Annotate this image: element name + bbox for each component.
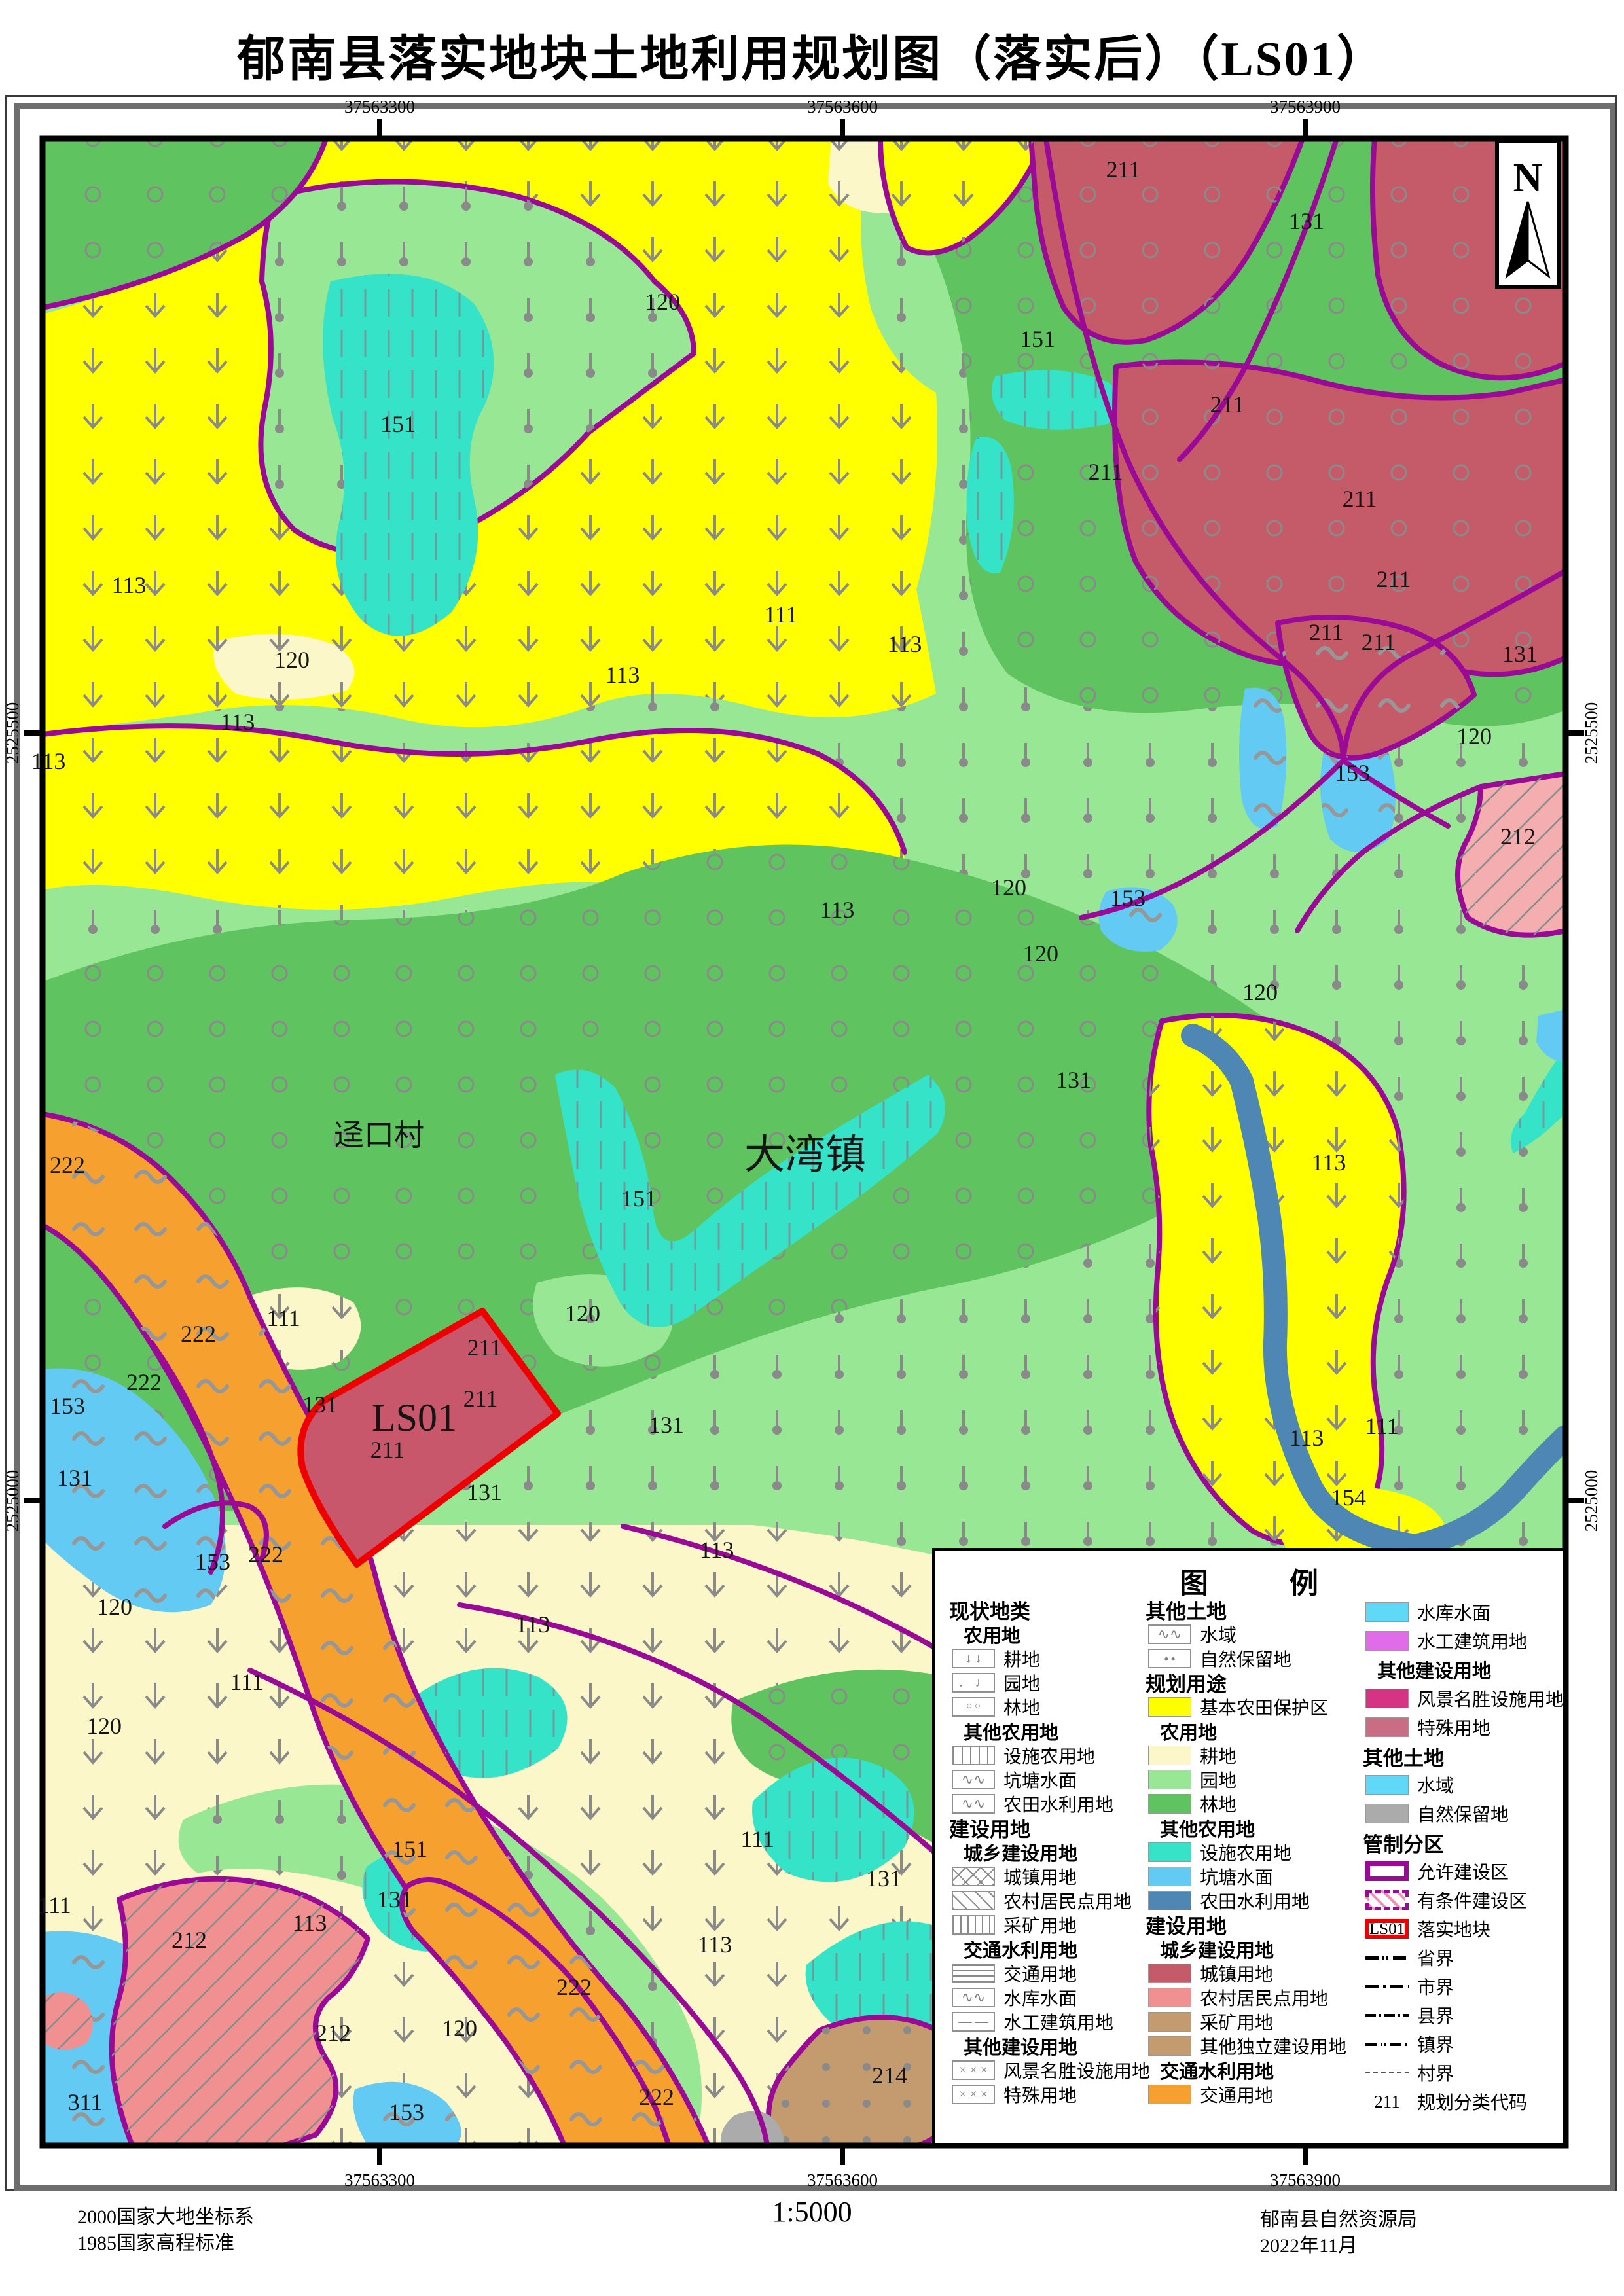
grid-coordinate-label: 37563600 — [807, 97, 878, 117]
legend-label: 其他独立建设用地 — [1200, 2033, 1346, 2059]
map-date: 2022年11月 — [1260, 2233, 1417, 2259]
legend-label: 坑塘水面 — [1200, 1863, 1273, 1890]
north-label: N — [1513, 156, 1543, 200]
legend-swatch-f-cyan2 — [1365, 1602, 1409, 1622]
legend-swatch-f-gray — [1365, 1804, 1409, 1823]
legend-label: 允许建设区 — [1417, 1858, 1509, 1884]
map-label: LS01 — [372, 1396, 457, 1439]
map-label: 113 — [1312, 1149, 1346, 1175]
legend-label: 农用地 — [1160, 1717, 1217, 1745]
legend-item: 水工建筑用地 — [1363, 1626, 1559, 1655]
map-label: 222 — [248, 1541, 283, 1568]
legend-swatch-f-magenta — [1365, 1631, 1409, 1651]
legend-item: 耕地 — [1146, 1743, 1360, 1767]
grid-coordinate-label: 37563300 — [344, 2170, 415, 2190]
legend-swatch-cur-xx — [952, 2060, 995, 2080]
map-label: 131 — [866, 1865, 901, 1892]
legend-header: 其他建设用地 — [1363, 1655, 1559, 1684]
legend-label: 耕地 — [1003, 1645, 1040, 1672]
map-label: 211 — [1089, 459, 1123, 485]
legend-item: 水域 — [1363, 1770, 1559, 1799]
legend-swatch-f-cream — [1148, 1746, 1191, 1765]
legend-item: 市界 — [1363, 1972, 1559, 2001]
map-label: 131 — [377, 1886, 412, 1912]
legend-item: 林地 — [1146, 1791, 1360, 1816]
map-label: 120 — [274, 647, 310, 673]
legend-swatch-f-tan — [1148, 2012, 1191, 2032]
map-label: 222 — [639, 2084, 674, 2110]
map-label: 120 — [645, 289, 680, 315]
map-label: 113 — [888, 631, 922, 657]
legend-item: 设施农用地 — [949, 1743, 1143, 1767]
legend-item: 211规划分类代码 — [1363, 2087, 1559, 2116]
map-label: 153 — [1110, 885, 1146, 911]
legend-header: 其他土地 — [1146, 1598, 1360, 1622]
legend-swatch-f-yellow — [1148, 1697, 1191, 1717]
map-label: 120 — [565, 1300, 600, 1327]
map-label: 111 — [740, 1826, 774, 1852]
legend-item: 风景名胜设施用地 — [1363, 1684, 1559, 1713]
map-label: 154 — [1331, 1484, 1366, 1511]
legend-item: 水域 — [1146, 1622, 1360, 1646]
legend-swatch-zone-cond — [1365, 1890, 1409, 1910]
legend-swatch-cur-wave — [952, 1988, 995, 2007]
legend-swatch-cur-diag — [952, 1891, 995, 1910]
legend-label: 镇界 — [1417, 2031, 1454, 2057]
legend-swatch-f-green — [1148, 1794, 1191, 1814]
legend-label: 园地 — [1200, 1767, 1236, 1793]
map-label: 111 — [1365, 1413, 1398, 1439]
legend-label: 采矿用地 — [1200, 2009, 1273, 2035]
legend-item: 农村居民点用地 — [949, 1888, 1143, 1912]
legend-header: 建设用地 — [949, 1816, 1143, 1840]
map-label: 120 — [991, 874, 1026, 901]
legend-swatch-f-cyan2 — [1365, 1775, 1409, 1795]
legend-label: 林地 — [1200, 1791, 1236, 1817]
legend-label: 自然保留地 — [1417, 1801, 1509, 1827]
legend-label: 农村居民点用地 — [1003, 1888, 1132, 1914]
legend-swatch-line-city — [1365, 1985, 1409, 1988]
legend-item: 农田水利用地 — [949, 1791, 1143, 1816]
legend-label: 特殊用地 — [1003, 2081, 1077, 2108]
legend-label: 水域 — [1417, 1772, 1454, 1798]
legend-label: 城乡建设用地 — [964, 1839, 1077, 1866]
legend-swatch-line-prov — [1365, 1956, 1409, 1960]
legend-swatch-f-steelblue — [1148, 1891, 1191, 1910]
legend-swatch-f-pink — [1148, 1988, 1191, 2007]
grid-coordinate-label: 2525500 — [3, 702, 22, 764]
map-label: 迳口村 — [334, 1119, 424, 1152]
map-label: 大湾镇 — [744, 1133, 866, 1177]
legend-label: 其他农用地 — [964, 1717, 1058, 1745]
legend-label: 风景名胜设施用地 — [1003, 2057, 1150, 2083]
legend-item: 自然保留地 — [1146, 1646, 1360, 1670]
page: 郁南县落实地块土地利用规划图（落实后）（LS01） — [0, 0, 1624, 2296]
map-label: 131 — [1502, 641, 1538, 667]
legend-swatch-line-town — [1365, 2043, 1409, 2046]
map-label: 120 — [86, 1713, 122, 1739]
map-label: 131 — [1289, 208, 1324, 234]
legend-swatch-cur-wave — [952, 1794, 995, 1814]
map-label: 113 — [31, 748, 66, 774]
map-label: 113 — [700, 1537, 734, 1563]
map-label: 111 — [764, 601, 797, 628]
map-label: 151 — [380, 411, 416, 437]
legend-swatch-f-darkred — [1148, 1964, 1191, 1983]
legend-label: 城镇用地 — [1003, 1863, 1077, 1890]
legend-swatch-line-county — [1365, 2014, 1409, 2017]
legend-label: 风景名胜设施用地 — [1417, 1685, 1564, 1712]
map-label: 151 — [621, 1185, 657, 1211]
map-label: 113 — [221, 709, 255, 735]
map-label: 111 — [37, 1892, 71, 1918]
map-label: 113 — [293, 1910, 327, 1936]
legend-swatch-f-orange — [1148, 2085, 1191, 2104]
legend-label: 管制分区 — [1363, 1828, 1444, 1857]
grid-coordinate-label: 37563600 — [807, 2170, 878, 2190]
legend-item: 县界 — [1363, 2001, 1559, 2030]
legend-label: 采矿用地 — [1003, 1912, 1077, 1938]
legend-label: 县界 — [1417, 2002, 1454, 2028]
map-label: 111 — [266, 1305, 300, 1331]
legend-item: 允许建设区 — [1363, 1857, 1559, 1886]
legend-item: 镇界 — [1363, 2030, 1559, 2058]
map-label: 212 — [171, 1927, 207, 1953]
legend-header: 交通水利用地 — [1146, 2058, 1360, 2082]
legend-item: 城镇用地 — [949, 1864, 1143, 1888]
legend-item: 采矿用地 — [1146, 2009, 1360, 2034]
map-label: 113 — [820, 897, 855, 923]
map-label: 222 — [126, 1369, 162, 1395]
legend-item: 园地 — [949, 1670, 1143, 1695]
map-label: 211 — [1343, 486, 1377, 512]
legend-label: 水库水面 — [1417, 1599, 1490, 1625]
agency-note: 郁南县自然资源局 2022年11月 — [1260, 2207, 1417, 2259]
legend-label: 设施农用地 — [1200, 1839, 1291, 1865]
legend-label: 农用地 — [964, 1621, 1020, 1648]
legend-label: 交通用地 — [1003, 1960, 1077, 1986]
legend-item: 自然保留地 — [1363, 1799, 1559, 1828]
legend-swatch-cur-dash — [952, 2012, 995, 2032]
legend-item: 村界 — [1363, 2058, 1559, 2087]
legend-item: 采矿用地 — [949, 1912, 1143, 1937]
map-label: 153 — [195, 1549, 230, 1575]
legend-header: 交通水利用地 — [949, 1937, 1143, 1961]
legend-header: 城乡建设用地 — [1146, 1937, 1360, 1961]
map-label: 222 — [50, 1152, 85, 1178]
legend-item: 农村居民点用地 — [1146, 1985, 1360, 2009]
map-label: 153 — [1335, 760, 1370, 786]
legend-label: 农村居民点用地 — [1200, 1984, 1328, 2011]
legend-label: 坑塘水面 — [1003, 1767, 1077, 1793]
map-label: 214 — [872, 2062, 907, 2089]
legend-header: 其他土地 — [1363, 1742, 1559, 1770]
grid-coordinate-label: 2525000 — [1581, 1470, 1601, 1532]
legend-header: 其他农用地 — [1146, 1816, 1360, 1840]
region-pattern-overlay — [1239, 688, 1286, 829]
legend-item: 园地 — [1146, 1767, 1360, 1791]
map-label: 153 — [50, 1393, 85, 1419]
legend-label: 园地 — [1003, 1670, 1040, 1696]
map-label: 131 — [649, 1412, 684, 1438]
legend-item: 省界 — [1363, 1943, 1559, 1972]
legend-item: 特殊用地 — [949, 2082, 1143, 2106]
legend-col-planned: 其他土地水域自然保留地规划用途基本农田保护区农用地耕地园地林地其他农用地设施农用… — [1146, 1598, 1360, 2106]
legend-header: 建设用地 — [1146, 1912, 1360, 1937]
legend-label: 交通水利用地 — [964, 1935, 1077, 1963]
legend-swatch-cur-pin — [952, 1673, 995, 1693]
north-arrow: N — [1497, 141, 1559, 287]
legend-item: 交通用地 — [949, 1961, 1143, 1985]
legend-label: 交通水利用地 — [1160, 2056, 1274, 2084]
legend-swatch-zone-allow — [1365, 1861, 1409, 1881]
map-label: 131 — [467, 1479, 502, 1505]
map-label: 113 — [698, 1931, 732, 1958]
legend-item: 坑塘水面 — [949, 1767, 1143, 1791]
legend-label: 设施农用地 — [1003, 1742, 1095, 1768]
legend-item: 耕地 — [949, 1646, 1143, 1670]
legend-header: 规划用途 — [1146, 1670, 1360, 1695]
legend-swatch-cur-vlines — [952, 1746, 995, 1765]
legend-item: 城镇用地 — [1146, 1961, 1360, 1985]
legend-item: 设施农用地 — [1146, 1840, 1360, 1864]
legend-label: 省界 — [1417, 1945, 1454, 1971]
legend-swatch-f-rose — [1365, 1689, 1409, 1708]
legend-label: 城镇用地 — [1200, 1960, 1273, 1986]
legend-swatch-cur-wave — [952, 1770, 995, 1789]
legend-swatch-f-dustyrose — [1365, 1717, 1409, 1737]
map-label: 120 — [442, 2015, 477, 2041]
datum-line2: 1985国家高程标准 — [77, 2231, 254, 2257]
map-label: 131 — [1056, 1067, 1091, 1093]
legend-label: 水域 — [1200, 1621, 1236, 1647]
legend-label: 其他建设用地 — [964, 2032, 1077, 2060]
legend-header: 农用地 — [1146, 1719, 1360, 1743]
map-label: 211 — [370, 1437, 405, 1463]
legend-item: 特殊用地 — [1363, 1713, 1559, 1742]
legend-label: 其他土地 — [1146, 1595, 1227, 1624]
legend-label: 落实地块 — [1417, 1916, 1490, 1942]
legend-item: 水库水面 — [949, 1985, 1143, 2009]
legend-label: 其他土地 — [1363, 1742, 1444, 1771]
map-label: 131 — [57, 1465, 92, 1491]
legend-item: 坑塘水面 — [1146, 1864, 1360, 1888]
legend-header: 农用地 — [949, 1622, 1143, 1646]
legend-header: 城乡建设用地 — [949, 1840, 1143, 1864]
legend-header: 现状地类 — [949, 1598, 1143, 1622]
map-label: 113 — [112, 572, 147, 598]
grid-coordinate-label: 37563900 — [1270, 97, 1341, 117]
legend-item: 基本农田保护区 — [1146, 1695, 1360, 1719]
map-label: 151 — [1020, 326, 1055, 352]
agency-name: 郁南县自然资源局 — [1260, 2207, 1417, 2233]
legend-swatch-f-cyan — [1148, 1842, 1191, 1862]
map-label: 222 — [181, 1321, 216, 1347]
legend-header: 其他建设用地 — [949, 2034, 1143, 2058]
legend-label: 其他建设用地 — [1377, 1656, 1491, 1683]
map-label: 120 — [1023, 941, 1058, 967]
legend-header: 其他农用地 — [949, 1719, 1143, 1743]
map-label: 211 — [1377, 566, 1411, 592]
map-label: 153 — [389, 2099, 424, 2125]
legend-label: 水工建筑用地 — [1003, 2009, 1113, 2035]
legend-swatch-f-lgreen — [1148, 1770, 1191, 1789]
grid-coordinate-label: 37563900 — [1270, 2170, 1341, 2190]
legend-label: 规划分类代码 — [1417, 2089, 1527, 2115]
legend-swatch-zone-ls: LS01 — [1365, 1919, 1409, 1939]
map-label: 113 — [1290, 1425, 1324, 1451]
legend-label: 水工建筑用地 — [1417, 1628, 1527, 1654]
legend-label: 城乡建设用地 — [1160, 1935, 1274, 1963]
map-label: 211 — [1362, 629, 1396, 655]
map-label: 111 — [230, 1669, 263, 1695]
legend-swatch-cur-circle — [952, 1697, 995, 1717]
map-label: 311 — [68, 2089, 103, 2115]
map-label: 211 — [1309, 619, 1344, 645]
map-label: 211 — [467, 1335, 502, 1361]
legend-label: 规划用途 — [1146, 1668, 1227, 1697]
map-label: 131 — [302, 1391, 338, 1418]
grid-coordinate-label: 37563300 — [344, 97, 415, 117]
map-label: 113 — [516, 1611, 550, 1638]
legend-item: 其他独立建设用地 — [1146, 2034, 1360, 2058]
legend-swatch-f-skyblue — [1148, 1867, 1191, 1886]
map-label: 222 — [556, 1974, 592, 2000]
legend-item: 交通用地 — [1146, 2082, 1360, 2106]
grid-coordinate-label: 2525000 — [3, 1470, 22, 1532]
map-label: 113 — [605, 662, 640, 688]
map-label: 151 — [392, 1836, 427, 1862]
map-label: 211 — [463, 1386, 498, 1412]
legend-item: 农田水利用地 — [1146, 1888, 1360, 1912]
map-label: 212 — [1500, 823, 1536, 850]
legend-label: 其他农用地 — [1160, 1814, 1255, 1842]
map-label: 120 — [1242, 979, 1278, 1005]
legend-swatch-cur-arrow — [952, 1649, 995, 1668]
legend-swatch-cur-xx — [952, 2085, 995, 2104]
legend-col-zones: 水库水面水工建筑用地其他建设用地风景名胜设施用地特殊用地其他土地水域自然保留地管… — [1363, 1598, 1559, 2116]
legend-item: 水工建筑用地 — [949, 2009, 1143, 2034]
legend-label: 市界 — [1417, 1973, 1454, 2000]
legend-item: LS01落实地块 — [1363, 1914, 1559, 1943]
legend-label: 有条件建设区 — [1417, 1887, 1527, 1913]
legend-col-current: 现状地类农用地耕地园地林地其他农用地设施农用地坑塘水面农田水利用地建设用地城乡建… — [949, 1598, 1143, 2106]
legend-item: 林地 — [949, 1695, 1143, 1719]
legend-swatch-cur-cross — [952, 1867, 995, 1886]
map-label: 120 — [1456, 723, 1492, 749]
legend-item: 风景名胜设施用地 — [949, 2058, 1143, 2082]
legend-label: 水库水面 — [1003, 1984, 1077, 2011]
legend-label: 交通用地 — [1200, 2081, 1273, 2108]
legend-item: 有条件建设区 — [1363, 1886, 1559, 1914]
legend-header: 管制分区 — [1363, 1828, 1559, 1857]
grid-coordinate-label: 2525500 — [1581, 702, 1601, 764]
legend-swatch-cur-hlines — [952, 1964, 995, 1983]
legend-item: 水库水面 — [1363, 1598, 1559, 1626]
legend-box: 图 例 现状地类农用地耕地园地林地其他农用地设施农用地坑塘水面农田水利用地建设用… — [932, 1548, 1566, 2145]
map-label: 211 — [1106, 156, 1141, 183]
legend-label: 林地 — [1003, 1694, 1040, 1720]
legend-swatch-cur-dots — [1148, 1649, 1191, 1668]
map-label: 212 — [316, 2020, 351, 2046]
legend-label: 村界 — [1417, 2060, 1454, 2086]
legend-swatch-line-village — [1365, 2072, 1409, 2073]
map-label: 120 — [97, 1594, 132, 1620]
legend-swatch-code: 211 — [1365, 2092, 1409, 2111]
legend-swatch-f-tan — [1148, 2036, 1191, 2056]
legend-label: 基本农田保护区 — [1200, 1694, 1328, 1720]
legend-swatch-cur-vbars — [952, 1915, 995, 1935]
legend-swatch-cur-wave — [1148, 1624, 1191, 1644]
legend-label: 特殊用地 — [1417, 1714, 1490, 1740]
legend-label: 耕地 — [1200, 1742, 1236, 1768]
map-label: 211 — [1210, 391, 1245, 418]
